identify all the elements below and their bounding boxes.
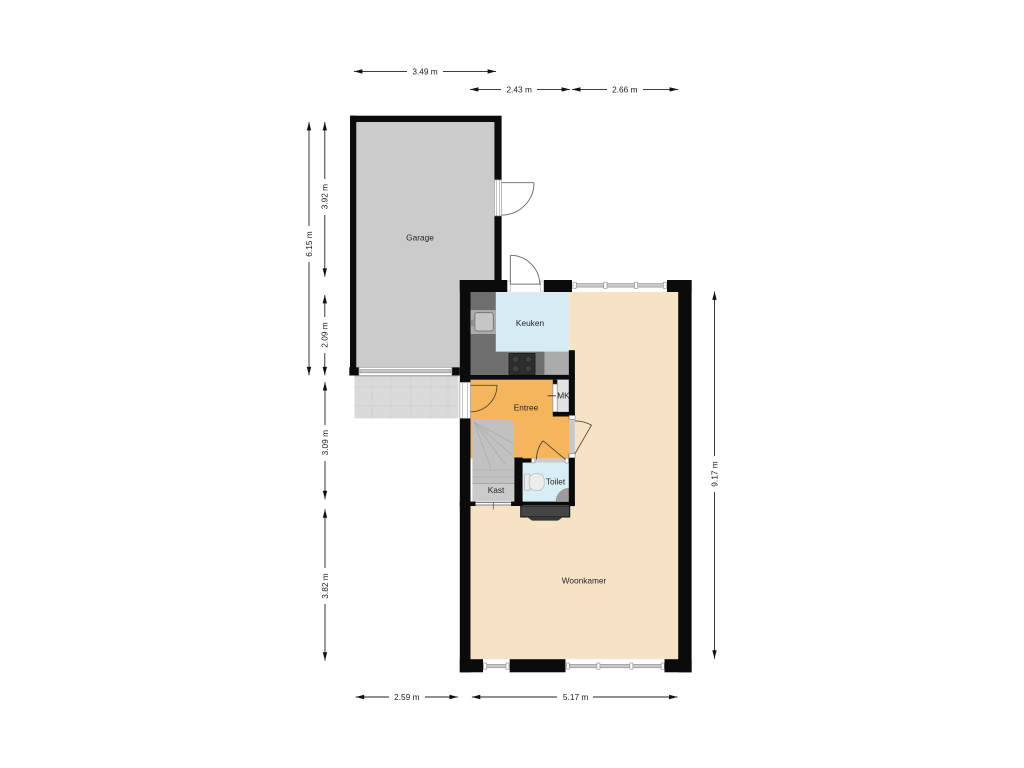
svg-text:5.17 m: 5.17 m xyxy=(563,692,588,702)
svg-text:Entree: Entree xyxy=(514,402,539,412)
svg-text:3.49 m: 3.49 m xyxy=(412,66,437,76)
svg-text:2.43 m: 2.43 m xyxy=(507,84,532,94)
svg-text:Kast: Kast xyxy=(488,485,505,495)
svg-text:Garage: Garage xyxy=(406,232,434,242)
svg-text:2.66 m: 2.66 m xyxy=(612,84,637,94)
svg-text:3.82 m: 3.82 m xyxy=(320,573,330,598)
svg-text:Toilet: Toilet xyxy=(546,476,566,486)
svg-text:3.92 m: 3.92 m xyxy=(320,184,330,209)
svg-text:9.17 m: 9.17 m xyxy=(709,461,719,486)
svg-text:3.09 m: 3.09 m xyxy=(320,430,330,455)
svg-text:2.59 m: 2.59 m xyxy=(394,692,419,702)
svg-text:6.15 m: 6.15 m xyxy=(304,231,314,256)
svg-text:Woonkamer: Woonkamer xyxy=(562,576,607,586)
svg-text:MK: MK xyxy=(557,391,570,401)
svg-text:2.09 m: 2.09 m xyxy=(320,322,330,347)
svg-text:Keuken: Keuken xyxy=(516,318,545,328)
